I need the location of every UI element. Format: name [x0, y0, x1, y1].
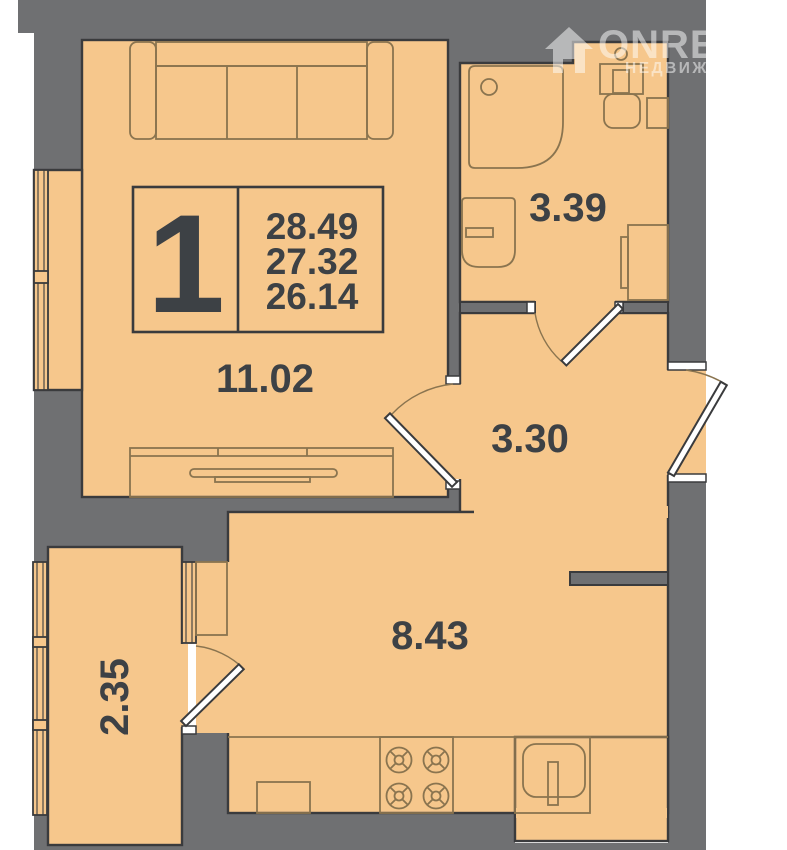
watermark-subtitle: НЕДВИЖИМОСТЬ — [625, 60, 787, 77]
balcony-kitchen-window — [182, 562, 196, 643]
floor-plan-page: 1 28.49 27.32 26.14 11.02 3.39 3.30 8.43… — [0, 0, 787, 850]
wall-segment — [34, 390, 82, 497]
hall-label: 3.30 — [491, 417, 569, 461]
balcony-label: 2.35 — [93, 658, 137, 736]
bathroom-label: 3.39 — [529, 186, 607, 230]
area-card: 1 28.49 27.32 26.14 — [133, 185, 383, 342]
living-window-mullion — [34, 271, 48, 283]
hall-floor — [460, 313, 668, 512]
balcony-window-mullion — [33, 637, 47, 647]
living-room-label: 11.02 — [216, 357, 314, 401]
wall-segment — [18, 0, 448, 33]
kitchen-floor-right — [515, 737, 668, 841]
bath-wall-left — [460, 302, 535, 313]
wall-segment — [82, 497, 473, 512]
wall-notch — [18, 33, 34, 42]
wall-segment — [515, 843, 706, 850]
wall-segment — [196, 813, 515, 850]
bath-wall-right — [623, 302, 668, 313]
balcony-window-mullion — [33, 720, 47, 730]
door-jamb — [182, 726, 196, 734]
hall-kitchen-stub-wall — [570, 572, 668, 585]
kitchen-label: 8.43 — [391, 614, 469, 658]
wall-segment — [34, 42, 82, 170]
balcony-window — [33, 562, 47, 815]
wall-segment — [182, 547, 228, 562]
door-jamb — [668, 362, 706, 370]
living-door-opening — [441, 384, 465, 479]
hall-kitchen-opening — [474, 506, 668, 518]
door-jamb — [527, 302, 535, 313]
room-count: 1 — [147, 185, 225, 342]
bath-door-opening — [535, 298, 615, 316]
floor-plan: 1 28.49 27.32 26.14 11.02 3.39 3.30 8.43… — [0, 0, 787, 850]
door-jamb — [446, 376, 460, 384]
area-reduced: 26.14 — [266, 276, 359, 317]
bathroom-floor — [460, 42, 668, 302]
